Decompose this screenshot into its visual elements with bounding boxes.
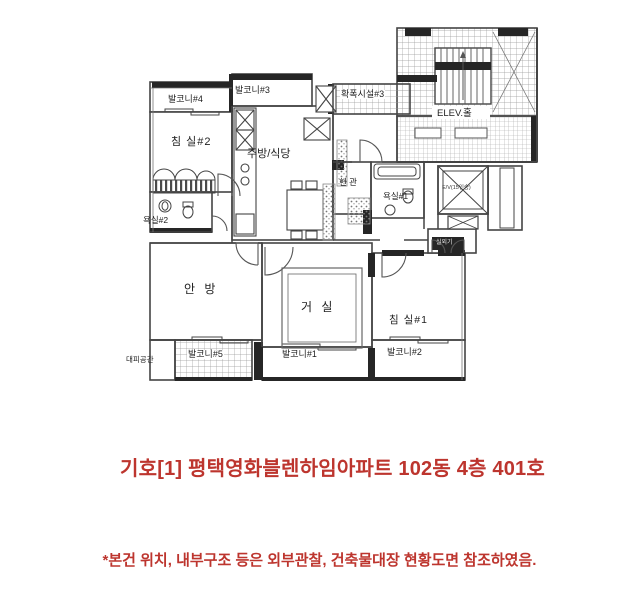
- caption-footnote: *본건 위치, 내부구조 등은 외부관찰, 건축물대장 현황도면 참조하였음.: [0, 549, 635, 570]
- label-balcony4: 발코니#4: [168, 95, 203, 104]
- caption-title: 기호[1] 평택영화블렌하임아파트 102동 4층 401호: [0, 452, 635, 481]
- label-balcony5: 발코니#5: [187, 350, 224, 359]
- label-refuge-space: 대피공간: [126, 356, 154, 364]
- label-elevator-car: E/V(15인승): [442, 186, 471, 192]
- appraisal-floorplan-page: 발코니#4 침 실#2 발코니#3 주방/식당 확폭시설#3 ELEV.홀 현 …: [0, 0, 635, 600]
- label-bathroom1: 욕실#1: [383, 192, 408, 201]
- label-bedroom1: 침 실#1: [389, 315, 428, 326]
- label-elevator-hall: ELEV.홀: [436, 109, 473, 119]
- elevator-hall-area: [397, 116, 537, 162]
- elevator-shaft: [438, 166, 488, 229]
- bedroom1-room: [372, 253, 465, 340]
- core-corridor: [488, 166, 522, 230]
- living-room-room: [262, 243, 372, 347]
- label-living-room: 거 실: [301, 301, 335, 313]
- label-bathroom2: 욕실#2: [143, 216, 168, 225]
- label-bedroom2: 침 실#2: [171, 137, 212, 148]
- kitchen-fixtures: [234, 108, 370, 240]
- label-kitchen-dining: 주방/식당: [247, 149, 291, 160]
- label-outdoor-unit: 실외기: [436, 240, 453, 246]
- label-master-bedroom: 안 방: [184, 283, 218, 295]
- label-balcony1: 발코니#1: [281, 350, 318, 359]
- label-balcony2: 발코니#2: [387, 348, 422, 357]
- balcony5-area: [175, 340, 252, 380]
- bathroom2-room: [150, 192, 212, 232]
- label-facility3: 확폭시설#3: [340, 90, 385, 99]
- label-entrance: 현 관: [339, 178, 357, 187]
- label-balcony3: 발코니#3: [235, 86, 270, 95]
- balcony2-room: [372, 340, 465, 380]
